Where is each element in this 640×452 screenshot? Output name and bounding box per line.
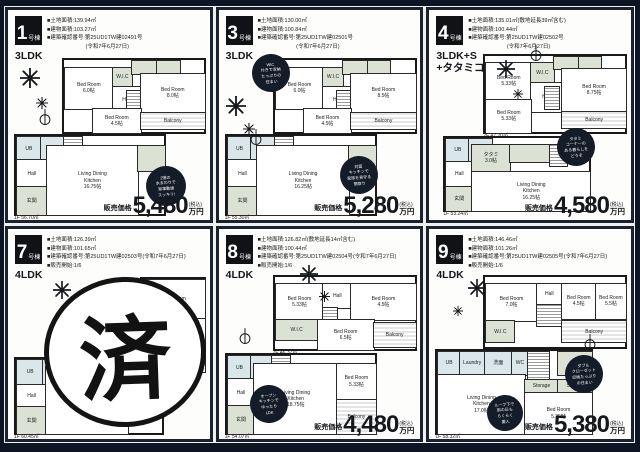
room-label: 8.0帖 [167,93,179,99]
property-details: ■土地面積:135.01㎡(敷地延長39㎡含む)■建物面積:100.44㎡■建築… [468,17,628,51]
room-label: 5.5帖 [605,301,617,307]
price-amount: 5,480 [132,195,189,217]
floor-plan-room [509,144,551,163]
unit-number: 1 [17,24,28,45]
property-detail-line: ■土地面積:126.82㎡(敷地延長14㎡含む) [258,236,418,245]
floor-plan-room: Bed Room6.5帖 [317,319,375,351]
floor-plan-room: W.I.C [485,320,515,343]
room-label: Hall [27,393,36,399]
room-label: 5.33帖 [501,116,516,122]
price-unit: 万円 [610,427,625,435]
floor-plan-room: UB [437,351,461,376]
floor-plan-room: Balcony [350,112,416,130]
property-detail-line: ■建物面積:100.84㎡ [258,26,418,35]
room-label: 16.25帖 [294,184,312,190]
floor-area-label: 1F 60.45㎡ [14,433,39,440]
floor-plan-room: 洗面 [484,351,514,376]
property-detail-line: ■建物面積:100.44㎡ [258,245,418,254]
price-unit: 万円 [399,427,414,435]
sparkle-star-icon [20,68,40,93]
price-row: 販売価格5,480(税込)万円 [104,195,204,217]
unit-number: 9 [438,243,449,264]
unit-number-suffix: 号棟 [449,252,462,264]
room-label: UB [27,369,34,375]
floor-area-label: 1F 56.70㎡ [14,214,39,221]
floor-plan-room: Hall [445,161,473,187]
room-label: UB [454,147,461,153]
floor-plan-room: UB [227,355,253,380]
floor-plan-room: Bed Room7.0帖 [485,283,537,323]
property-details: ■土地面積:130.00㎡■建物面積:100.84㎡■建築確認番号:第25UD1… [258,17,418,51]
room-label: Balcony [164,118,182,124]
room-label: 8.5帖 [377,93,389,99]
room-label: UB [236,146,243,152]
layout-type-label: 3LDK [15,50,42,62]
room-label: UB [446,360,453,366]
unit-number-badge: 1号棟 [15,16,42,45]
layout-type-label: 3LDK [226,50,253,62]
floor-plan-2f: Bed Room6.0帖W.I.CHallBed Room8.5帖Bed Roo… [273,58,417,134]
floor-plan-room: Balcony [140,112,206,130]
floor-plan-2f: Bed Room7.0帖HallBed Room4.5帖Bed Room5.5帖… [483,275,627,349]
floor-plan-room: Hall [227,159,259,188]
property-details: ■土地面積:146.46㎡■建物面積:101.26㎡■建築確認番号:第25UD1… [468,236,628,270]
sparkle-star-icon [468,279,486,302]
property-details: ■土地面積:126.39㎡■建物面積:101.65㎡■建築確認番号:第25UD1… [47,236,207,270]
sparkle-star-icon [319,289,330,307]
floor-plan-room: Bed Room5.33帖 [485,99,532,134]
property-detail-line: ■建物面積:101.65㎡ [47,245,207,254]
floor-plan-room: Laundry [459,351,486,376]
price-row: 販売価格5,380(税込)万円 [525,414,625,436]
floor-plan-room: Bed Room8.0帖 [140,73,206,114]
property-detail-line: ■建築確認番号:第25UD1TW建02501号 [258,34,418,43]
floor-plan-room [527,351,551,381]
property-detail-line: ■販売開始:1/6 [468,262,628,271]
unit-panel-9: 9号棟■土地面積:146.46㎡■建物面積:101.26㎡■建築確認番号:第25… [426,226,634,442]
property-detail-line: ■建築確認番号:第25UD1TW建02502号 [468,34,628,43]
unit-number-badge: 9号棟 [436,235,463,264]
unit-number: 7 [17,243,28,264]
price-unit-stack: (税込)万円 [610,421,625,436]
floor-plan-room: 玄関 [16,406,47,435]
room-label: 4.5帖 [111,121,123,127]
property-detail-line: ■建物面積:101.26㎡ [468,245,628,254]
floor-plan-room: Bed Room4.5帖 [350,283,416,321]
floor-plan-room: Bed Room4.5帖 [303,108,353,134]
room-label: W.I.C [327,74,339,80]
floor-area-label: 1F 54.07㎡ [225,433,250,440]
price-amount: 5,380 [553,414,610,436]
floor-plan-room [536,304,563,327]
floor-plan-room: Bed Room5.33帖 [336,363,376,401]
property-details: ■土地面積:126.82㎡(敷地延長14㎡含む)■建物面積:100.44㎡■建築… [258,236,418,270]
property-detail-line: ■建築確認番号:第25UD1TW建02504号(令和7年6月27日) [258,253,418,262]
floor-plan-room: UB [445,138,470,163]
room-label: Hall [27,171,36,177]
compass-north-icon [583,333,597,357]
property-detail-line: (令和7年6月27日) [258,43,418,52]
room-label: 5.33帖 [349,382,364,388]
room-label: UB [25,146,32,152]
unit-number-badge: 8号棟 [226,235,253,264]
unit-number: 4 [438,24,449,45]
property-detail-line: ■建築確認番号:第25UD1TW建02503号(令和7年6月27日) [47,253,207,262]
unit-number-suffix: 号棟 [449,33,462,45]
price-label: 販売価格 [314,203,342,217]
property-detail-line: ■販売開始:1/6 [47,262,207,271]
property-detail-line: ■販売開始:1/6 [258,262,418,271]
room-label: Hall [455,171,464,177]
unit-panel-4: 4号棟■土地面積:135.01㎡(敷地延長39㎡含む)■建物面積:100.44㎡… [426,7,634,223]
floor-plan-room: Bed Room5.5帖 [595,283,628,320]
price-label: 販売価格 [104,203,132,217]
property-detail-line: ■建物面積:103.27㎡ [47,26,207,35]
unit-number-suffix: 号棟 [27,33,40,45]
floor-area-label: 1F 55.30㎡ [225,214,250,221]
room-label: 玄関 [237,198,247,204]
room-label: W.I.C [291,327,303,333]
compass-north-icon [249,128,263,152]
room-label: 玄関 [27,198,37,204]
property-detail-line: ■建築確認番号:第25UD1TW建02491号 [47,34,207,43]
floor-plan-2f: Bed Room6.0帖W.I.CHallBed Room8.0帖Bed Roo… [62,58,206,134]
price-unit-stack: (税込)万円 [399,421,414,436]
room-label: Hall [237,390,246,396]
price-label: 販売価格 [314,422,342,436]
price-unit-stack: (税込)万円 [610,202,625,217]
compass-north-icon [238,327,252,351]
unit-panel-8: 8号棟■土地面積:126.82㎡(敷地延長14㎡含む)■建物面積:100.44㎡… [216,226,424,442]
floor-plan-room: Bed Room6.0帖 [64,67,114,109]
price-amount: 5,280 [342,195,399,217]
room-label: WC [516,360,524,366]
price-unit-stack: (税込)万円 [189,202,204,217]
room-label: W.I.C [494,329,506,335]
room-label: 4.5帖 [321,121,333,127]
compass-north-icon [529,44,543,68]
floor-plan-room: W.I.C [322,67,344,88]
room-label: 6.0帖 [83,88,95,94]
room-label: 6.0帖 [293,88,305,94]
price-row: 販売価格4,580(税込)万円 [525,195,625,217]
room-label: 3.0帖 [485,158,497,164]
sparkle-star-icon [497,60,515,83]
price-unit: 万円 [399,208,414,216]
room-label: 玄関 [454,196,464,202]
unit-number: 8 [227,243,238,264]
sparkle-star-icon [300,265,318,288]
property-detail-line: ■建築確認番号:第25UD1TW建02505号(令和7年6月27日) [468,253,628,262]
room-label: Balcony [375,118,393,124]
price-unit: 万円 [610,208,625,216]
price-amount: 4,580 [553,195,610,217]
room-label: 洗面 [493,360,503,366]
room-label: W.I.C [116,74,128,80]
sparkle-star-icon [513,86,523,104]
unit-number: 3 [227,24,238,45]
room-label: 18.75帖 [287,402,305,408]
floor-plan-room: W.I.C [112,67,134,88]
property-detail-line: (令和7年6月27日) [47,43,207,52]
unit-number-badge: 4号棟 [436,16,463,45]
price-amount: 4,480 [342,414,399,436]
layout-type-label: 4LDK [226,269,253,281]
floor-plan-room: 玄関 [16,186,48,216]
room-label: 4.5帖 [573,301,585,307]
floor-plan-2f: Bed Room5.33帖HallBed Room4.5帖W.I.CBed Ro… [273,275,417,351]
floor-plan-room: Bed Room5.33帖 [275,283,325,321]
unit-panel-3: 3号棟■土地面積:130.00㎡■建物面積:100.84㎡■建築確認番号:第25… [216,7,424,223]
price-label: 販売価格 [525,203,553,217]
room-label: Balcony [585,117,603,123]
property-details: ■土地面積:139.94㎡■建物面積:103.27㎡■建築確認番号:第25UD1… [47,17,207,51]
property-detail-line: ■土地面積:146.46㎡ [468,236,628,245]
room-label: 8.75帖 [587,90,602,96]
property-detail-line: ■土地面積:130.00㎡ [258,17,418,26]
room-label: 7.0帖 [506,302,518,308]
floor-plan-room: Hall [16,159,48,188]
property-detail-line: ■土地面積:126.39㎡ [47,236,207,245]
unit-number-suffix: 号棟 [238,252,251,264]
floor-plan-room: Hall [16,384,47,408]
unit-number-suffix: 号棟 [238,33,251,45]
floor-plan-room: Hall [536,283,563,306]
flyer-sheet: 1号棟■土地面積:139.94㎡■建物面積:103.27㎡■建築確認番号:第25… [4,6,635,443]
price-row: 販売価格4,480(税込)万円 [314,414,414,436]
room-label: Balcony [386,332,404,338]
unit-number-badge: 3号棟 [226,16,253,45]
room-label: Storage [533,383,551,389]
floor-plan-room: Balcony [373,322,417,348]
unit-panel-7: 7号棟■土地面積:126.39㎡■建物面積:101.65㎡■建築確認番号:第25… [5,226,213,442]
layout-type-label: 4LDK [15,269,42,281]
floor-plan-room: Bed Room4.5帖 [561,283,597,320]
price-unit: 万円 [189,208,204,216]
room-label: 玄関 [236,417,246,423]
sold-stamp-text: 済 [77,284,174,420]
property-detail-line: ■土地面積:139.94㎡ [47,17,207,26]
floor-area-label: 1F 53.24㎡ [443,210,468,217]
layout-type-label: 4LDK [436,269,463,281]
room-label: Hall [545,291,554,297]
floor-plan-room: W.I.C [275,319,319,341]
price-label: 販売価格 [525,422,553,436]
floor-plan-room: Balcony [561,111,627,130]
floor-area-label: 1F 58.32㎡ [435,433,460,440]
room-label: 5.33帖 [292,302,307,308]
price-unit-stack: (税込)万円 [399,202,414,217]
floor-plan-room: UB [16,359,44,386]
room-label: 4.5帖 [377,302,389,308]
sparkle-star-icon [226,96,246,121]
floor-plan-room: 玄関 [227,186,259,216]
unit-number-suffix: 号棟 [27,252,40,264]
room-label: W.I.C [536,70,548,76]
floor-plan-room: 玄関 [445,186,473,212]
property-detail-line: ■土地面積:135.01㎡(敷地延長39㎡含む) [468,17,628,26]
floor-plan-room: Bed Room8.5帖 [350,73,416,114]
unit-number-badge: 7号棟 [15,235,42,264]
floor-plan-room [544,86,560,109]
compass-north-icon [38,108,52,132]
floor-plan-room: Bed Room8.75帖 [561,68,627,113]
room-label: Hall [333,293,342,299]
sparkle-star-icon [453,303,463,321]
room-label: UB [236,365,243,371]
room-label: 16.75帖 [84,184,102,190]
room-label: Laundry [463,360,481,366]
floor-plan-room: タタミ3.0帖 [471,144,510,173]
price-row: 販売価格5,280(税込)万円 [314,195,414,217]
floor-plan-room: UB [16,136,42,161]
unit-panel-1: 1号棟■土地面積:139.94㎡■建物面積:103.27㎡■建築確認番号:第25… [5,7,213,223]
room-label: 6.5帖 [340,335,352,341]
room-label: 玄関 [27,418,37,424]
floor-plan-room: Bed Room4.5帖 [92,108,142,134]
property-detail-line: ■建物面積:100.44㎡ [468,26,628,35]
room-label: Hall [238,171,247,177]
